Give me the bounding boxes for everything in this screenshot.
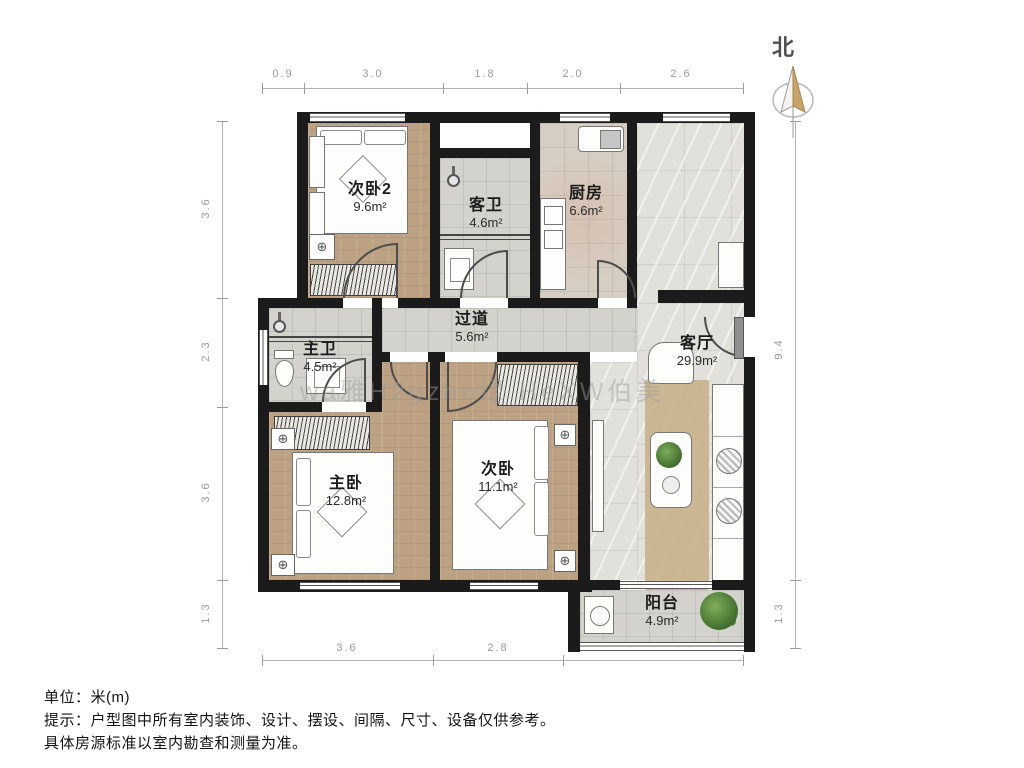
room-label-hallway: 过道 5.6m² [432, 310, 512, 345]
room-area: 12.8m² [306, 493, 386, 509]
dim-tick [217, 648, 228, 649]
room-name: 主卫 [282, 340, 358, 359]
dim-line-left [222, 121, 223, 649]
dim-top-3: 2.0 [553, 68, 593, 80]
dim-right-1: 1.3 [773, 593, 785, 633]
wall [658, 290, 744, 303]
window [259, 330, 268, 385]
dim-tick [743, 83, 744, 94]
door-leaf [396, 243, 398, 298]
room-area: 4.6m² [448, 215, 524, 231]
footer-unit: 单位：米(m) [44, 686, 130, 707]
shower-head-icon [273, 320, 286, 333]
dim-tick [620, 83, 621, 94]
exterior-notch [440, 123, 530, 148]
dim-tick [790, 580, 801, 581]
room-label-guest-bathroom: 客卫 4.6m² [448, 196, 524, 231]
dim-line-bottom [262, 660, 744, 661]
sofa-cushion-icon [716, 448, 742, 474]
dim-right-0: 9.4 [773, 329, 785, 369]
pillow-icon [364, 130, 406, 145]
wall [568, 580, 580, 652]
room-name: 阳台 [622, 594, 702, 613]
window [470, 582, 538, 590]
dim-tick [217, 121, 228, 122]
footer-tip-1: 提示：户型图中所有室内装饰、设计、摆设、间隔、尺寸、设备仅供参考。 [44, 709, 556, 730]
dim-line-right [795, 121, 796, 649]
wall [398, 298, 460, 308]
room-name: 次卧 [458, 460, 538, 479]
wall [712, 580, 744, 590]
window [300, 582, 400, 590]
room-area: 9.6m² [330, 199, 410, 215]
dim-tick [262, 655, 263, 666]
wall [508, 298, 598, 308]
shower-partition [440, 234, 530, 240]
room-name: 过道 [432, 310, 512, 329]
dim-bottom-0: 3.6 [327, 642, 367, 654]
compass-icon [768, 60, 818, 140]
plant-icon [700, 592, 738, 630]
dim-tick [433, 655, 434, 666]
dim-tick [217, 580, 228, 581]
room-name: 次卧2 [330, 180, 410, 199]
dim-tick [563, 655, 564, 666]
dim-tick [217, 298, 228, 299]
cup-icon [662, 476, 680, 494]
dim-tick [443, 83, 444, 94]
window [560, 113, 610, 122]
wall [297, 112, 308, 308]
room-name: 客卫 [448, 196, 524, 215]
entry-cabinet-icon [718, 242, 744, 288]
ac-unit-icon: ⊕ [309, 234, 335, 260]
sliding-door [620, 581, 712, 589]
room-name: 主卧 [306, 474, 386, 493]
dim-bottom-1: 2.8 [478, 642, 518, 654]
door-leaf [597, 260, 599, 298]
wall [497, 352, 578, 362]
dim-top-0: 0.9 [263, 68, 303, 80]
pillow-icon [296, 510, 311, 558]
wall [744, 112, 755, 317]
room-area: 29.9m² [657, 353, 737, 369]
footer-tip-2: 具体房源标准以室内勘查和测量为准。 [44, 732, 308, 753]
sofa-cushion-icon [716, 498, 742, 524]
plant-icon [656, 442, 682, 468]
wall [633, 298, 637, 308]
kitchen-basin-icon [600, 130, 621, 149]
wall [530, 112, 540, 308]
sofa-seam [713, 487, 743, 488]
sofa-seam [713, 538, 743, 539]
room-name: 客厅 [657, 334, 737, 353]
room-name: 厨房 [546, 184, 626, 203]
sofa-seam [713, 436, 743, 437]
window [663, 113, 730, 122]
dim-tick [304, 83, 305, 94]
wall [308, 298, 343, 308]
wall [372, 352, 390, 362]
stove-icon [544, 230, 563, 249]
wall [430, 112, 440, 308]
dim-top-4: 2.6 [661, 68, 701, 80]
watermark: wa雅H2gzho绿 HeXW伯美 [300, 372, 665, 408]
ac-unit-icon: ⊕ [554, 424, 576, 446]
dim-tick [217, 407, 228, 408]
room-label-kitchen: 厨房 6.6m² [546, 184, 626, 219]
wall [430, 148, 540, 158]
ac-unit-icon: ⊕ [271, 554, 295, 576]
room-area: 5.6m² [432, 329, 512, 345]
dim-tick [262, 83, 263, 94]
dim-left-1: 2.3 [200, 331, 212, 371]
room-area: 4.9m² [622, 613, 702, 629]
wall [592, 580, 620, 590]
shower-head-icon [447, 174, 460, 187]
room-label-bedroom2: 次卧2 9.6m² [330, 180, 410, 215]
pillow-icon [320, 130, 362, 145]
dim-tick [790, 648, 801, 649]
dim-left-3: 1.3 [200, 593, 212, 633]
wall [744, 357, 755, 652]
sofa-icon [712, 384, 744, 588]
cabinet-icon [309, 136, 325, 188]
dim-line-top [262, 88, 744, 89]
room-label-living-room: 客厅 29.9m² [657, 334, 737, 369]
washer-drum-icon [590, 606, 610, 626]
dim-top-2: 1.8 [465, 68, 505, 80]
floor-plan-page: ⊕ ⊕ ⊕ ⊕ ⊕ [0, 0, 1024, 768]
ac-unit-icon: ⊕ [554, 550, 576, 572]
dim-tick [527, 83, 528, 94]
dim-left-2: 3.6 [200, 472, 212, 512]
room-area: 6.6m² [546, 203, 626, 219]
room-label-bedroom: 次卧 11.1m² [458, 460, 538, 495]
window [310, 113, 405, 122]
balcony-railing [580, 642, 744, 651]
room-label-balcony: 阳台 4.9m² [622, 594, 702, 629]
ac-unit-icon: ⊕ [271, 428, 295, 450]
room-area: 11.1m² [458, 479, 538, 495]
dim-top-1: 3.0 [353, 68, 393, 80]
door-leaf [506, 250, 508, 298]
tv-cabinet-icon [592, 420, 604, 532]
dim-left-0: 3.6 [200, 188, 212, 228]
north-label: 北 [763, 30, 803, 62]
room-label-master-bathroom: 主卫 4.5m² [282, 340, 358, 375]
room-label-master-bedroom: 主卧 12.8m² [306, 474, 386, 509]
dim-tick [743, 655, 744, 666]
